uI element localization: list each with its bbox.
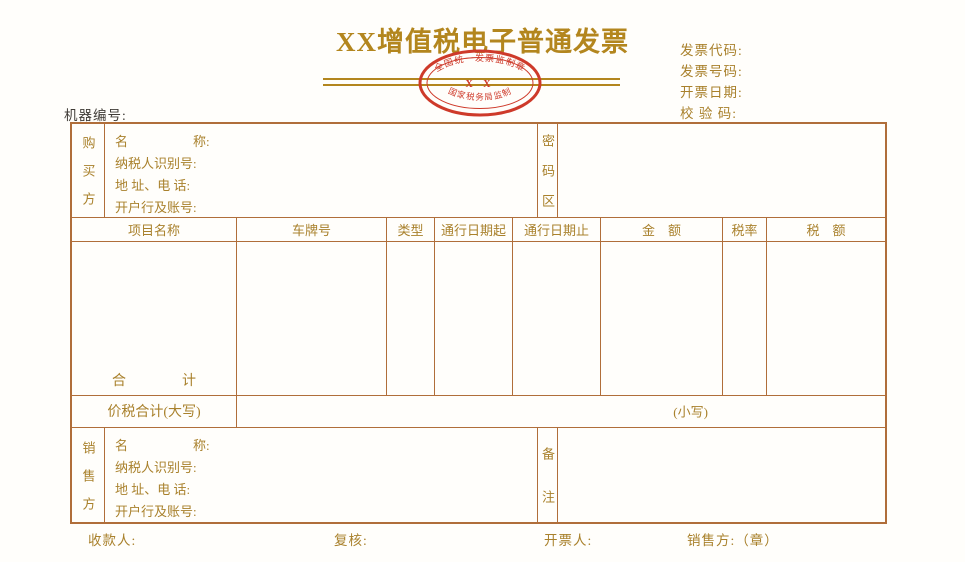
body-date-to-column: [513, 242, 601, 395]
remarks-label: 备注: [538, 447, 557, 533]
header-type: 类型: [387, 218, 435, 241]
buyer-address-label: 地 址、电 话:: [115, 175, 537, 197]
remarks-label-cell: 备注: [538, 428, 558, 522]
body-type-column: [387, 242, 435, 395]
seller-name-label: 名 称:: [115, 435, 537, 457]
password-area-label-cell: 密码区: [538, 124, 558, 217]
body-tax-amount-column: [767, 242, 885, 395]
buyer-taxid-label: 纳税人识别号:: [115, 153, 537, 175]
buyer-party-label: 购买方: [79, 136, 98, 220]
header-tax-amount: 税 额: [767, 218, 885, 241]
buyer-info-cell: 名 称: 纳税人识别号: 地 址、电 话: 开户行及账号:: [105, 124, 538, 217]
body-plate-column: [237, 242, 387, 395]
password-area: [558, 124, 885, 217]
seller-section: 销售方 名 称: 纳税人识别号: 地 址、电 话: 开户行及账号: 备注: [72, 428, 885, 522]
header-tax-rate: 税率: [723, 218, 767, 241]
grand-total-row: 价税合计(大写) (小写): [72, 396, 885, 428]
invoice-date-label: 开票日期:: [680, 82, 743, 103]
reviewer-label: 复核:: [334, 529, 368, 549]
header-plate-number: 车牌号: [237, 218, 387, 241]
header-amount: 金 额: [601, 218, 723, 241]
header-date-to: 通行日期止: [513, 218, 601, 241]
buyer-bank-label: 开户行及账号:: [115, 197, 537, 219]
seller-party-cell: 销售方: [72, 428, 105, 522]
seller-bank-label: 开户行及账号:: [115, 501, 537, 523]
header-date-from: 通行日期起: [435, 218, 513, 241]
machine-number-label: 机器编号:: [64, 104, 127, 124]
invoice-meta-block: 发票代码: 发票号码: 开票日期: 校 验 码:: [680, 40, 743, 124]
seller-party-label: 销售方: [79, 441, 98, 525]
buyer-name-label: 名 称:: [115, 131, 537, 153]
seller-seal-label: 销售方:（章）: [687, 529, 779, 549]
invoice-page: XX增值税电子普通发票 全国统一发票监制章 国家税务局监制 X X 发票代码: …: [0, 0, 965, 562]
password-area-label: 密码区: [538, 134, 557, 224]
seal-center-text: X X: [466, 79, 495, 90]
items-body-area: 合 计: [72, 242, 885, 396]
header-item-name: 项目名称: [72, 218, 237, 241]
grand-total-num-label: (小写): [673, 402, 708, 421]
buyer-party-cell: 购买方: [72, 124, 105, 217]
invoice-number-label: 发票号码:: [680, 61, 743, 82]
tax-supervision-seal-icon: 全国统一发票监制章 国家税务局监制 X X: [417, 49, 543, 117]
body-date-from-column: [435, 242, 513, 395]
invoice-code-label: 发票代码:: [680, 40, 743, 61]
total-row-label: 合 计: [72, 242, 237, 395]
check-code-label: 校 验 码:: [680, 103, 743, 124]
seller-address-label: 地 址、电 话:: [115, 479, 537, 501]
remarks-area: [558, 428, 885, 522]
items-header-row: 项目名称 车牌号 类型 通行日期起 通行日期止 金 额 税率 税 额: [72, 218, 885, 242]
grand-total-cn-label: 价税合计(大写): [72, 396, 237, 427]
drawer-label: 开票人:: [544, 529, 592, 549]
grand-total-value-cell: (小写): [237, 396, 885, 427]
body-tax-rate-column: [723, 242, 767, 395]
invoice-table: 购买方 名 称: 纳税人识别号: 地 址、电 话: 开户行及账号: 密码区 项目…: [70, 122, 887, 524]
seller-taxid-label: 纳税人识别号:: [115, 457, 537, 479]
seller-info-cell: 名 称: 纳税人识别号: 地 址、电 话: 开户行及账号:: [105, 428, 538, 522]
payee-label: 收款人:: [88, 529, 136, 549]
buyer-section: 购买方 名 称: 纳税人识别号: 地 址、电 话: 开户行及账号: 密码区: [72, 124, 885, 218]
body-amount-column: [601, 242, 723, 395]
